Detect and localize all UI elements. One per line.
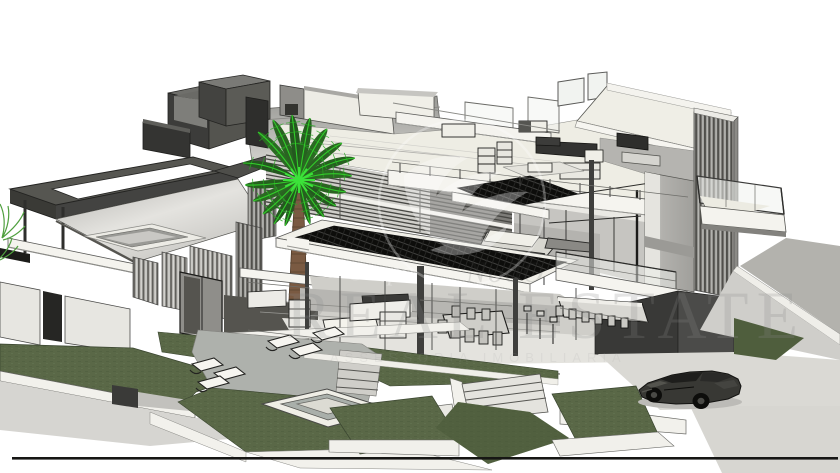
svg-text:REAL ESTATE: REAL ESTATE (286, 277, 806, 353)
svg-text:ASSESSORIA IMOBILIARIA: ASSESSORIA IMOBILIARIA (330, 350, 627, 365)
